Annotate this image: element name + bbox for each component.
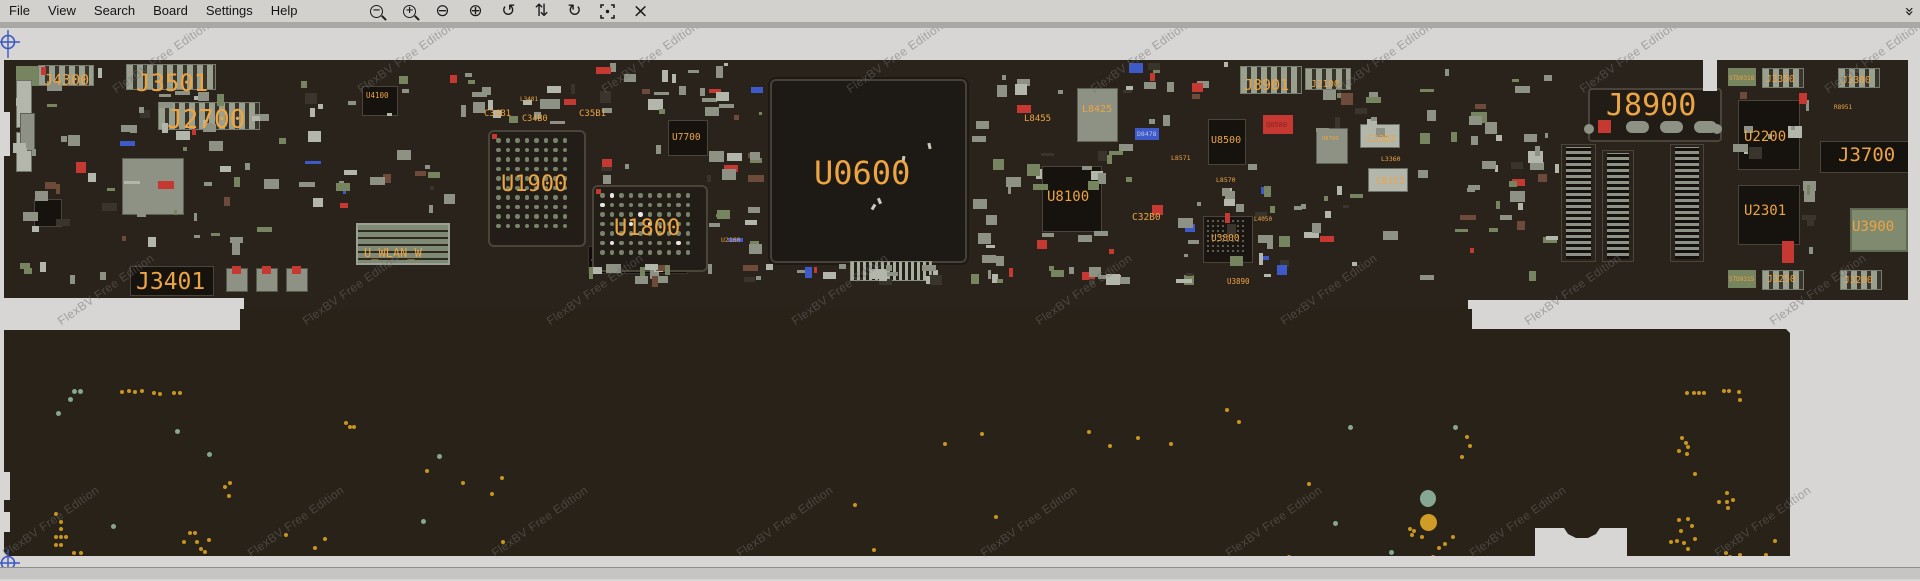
pcb-component[interactable] bbox=[1304, 232, 1318, 237]
board-viewer-canvas[interactable]: J4300J3501J2700U4100L3401C34B1C34B0C35B1… bbox=[0, 28, 1920, 567]
pcb-component[interactable] bbox=[656, 145, 661, 155]
pcb-component[interactable] bbox=[32, 149, 36, 156]
pcb-component[interactable] bbox=[972, 136, 986, 142]
center-target-icon[interactable] bbox=[598, 1, 618, 21]
pcb-component[interactable] bbox=[1058, 90, 1063, 93]
pcb-component[interactable] bbox=[1178, 218, 1194, 228]
pcb-component[interactable] bbox=[257, 227, 272, 233]
pcb-component[interactable] bbox=[340, 203, 348, 208]
toolbar-overflow-chevrons-icon[interactable]: » bbox=[1901, 7, 1920, 15]
pcb-component[interactable] bbox=[122, 158, 184, 215]
pcb-component[interactable] bbox=[301, 81, 307, 88]
pcb-component[interactable] bbox=[749, 244, 763, 254]
pcb-component[interactable] bbox=[564, 99, 577, 104]
pcb-component[interactable] bbox=[550, 121, 565, 124]
pcb-component[interactable] bbox=[1584, 124, 1594, 134]
pcb-component[interactable] bbox=[299, 182, 315, 187]
pcb-component[interactable] bbox=[1264, 274, 1271, 277]
pcb-component[interactable] bbox=[24, 268, 32, 274]
component-label-U1900[interactable]: U1900 bbox=[501, 174, 567, 196]
pcb-component[interactable] bbox=[1027, 164, 1040, 176]
pcb-component[interactable] bbox=[100, 272, 106, 281]
pcb-component[interactable] bbox=[1323, 90, 1336, 100]
pcb-component[interactable] bbox=[976, 121, 988, 129]
pcb-component[interactable] bbox=[279, 138, 287, 144]
pcb-component[interactable] bbox=[571, 84, 575, 94]
pcb-component[interactable] bbox=[1176, 279, 1192, 282]
component-label-Q8580[interactable]: Q8580 bbox=[1266, 122, 1287, 129]
pcb-component[interactable] bbox=[1420, 275, 1434, 281]
pcb-component[interactable] bbox=[603, 175, 610, 184]
pcb-component[interactable] bbox=[130, 125, 137, 134]
component-label-J3350[interactable]: J3350 bbox=[1766, 75, 1795, 85]
pcb-component[interactable] bbox=[1343, 205, 1349, 208]
component-label-J3250[interactable]: J3250 bbox=[1767, 275, 1796, 285]
pcb-component[interactable] bbox=[1712, 124, 1722, 134]
pcb-component[interactable] bbox=[1051, 270, 1064, 278]
pcb-component[interactable] bbox=[465, 73, 472, 77]
pcb-component[interactable] bbox=[744, 277, 755, 282]
pcb-component[interactable] bbox=[1366, 97, 1381, 102]
pcb-component[interactable] bbox=[886, 265, 892, 270]
component-label-D8478[interactable]: D8478 bbox=[1137, 131, 1157, 138]
pcb-component[interactable] bbox=[1264, 186, 1271, 197]
pcb-component[interactable] bbox=[1316, 128, 1348, 164]
pcb-component[interactable] bbox=[1109, 151, 1123, 155]
pcb-component[interactable] bbox=[1383, 231, 1398, 240]
pcb-component[interactable] bbox=[1538, 174, 1547, 182]
pcb-component[interactable] bbox=[430, 186, 435, 190]
pcb-component[interactable] bbox=[1469, 116, 1482, 126]
pcb-component[interactable] bbox=[1451, 132, 1457, 142]
pcb-component[interactable] bbox=[823, 272, 836, 279]
pcb-component[interactable] bbox=[1511, 162, 1523, 169]
pcb-component[interactable] bbox=[1529, 271, 1536, 281]
pcb-component[interactable] bbox=[1496, 135, 1502, 141]
component-label-STD9315[interactable]: STD9315 bbox=[1729, 277, 1754, 283]
pcb-component[interactable] bbox=[482, 87, 490, 96]
pcb-component[interactable] bbox=[654, 92, 670, 95]
pcb-component[interactable] bbox=[1188, 240, 1200, 244]
pcb-component[interactable] bbox=[748, 175, 764, 182]
pcb-component[interactable] bbox=[1782, 241, 1794, 263]
component-label-U2301[interactable]: U2301 bbox=[1744, 204, 1786, 218]
rotate-cw-icon[interactable]: ↻ bbox=[565, 1, 585, 21]
pcb-component[interactable] bbox=[750, 152, 760, 160]
pcb-component[interactable] bbox=[750, 241, 759, 244]
pcb-component[interactable] bbox=[1148, 63, 1160, 70]
pcb-component[interactable] bbox=[1224, 199, 1235, 206]
pcb-component[interactable] bbox=[1467, 188, 1475, 192]
component-label-L8425[interactable]: L8425 bbox=[1082, 105, 1112, 115]
pcb-component[interactable] bbox=[1123, 90, 1132, 93]
pcb-component[interactable] bbox=[707, 175, 711, 182]
pcb-component[interactable] bbox=[107, 188, 116, 192]
pcb-component[interactable] bbox=[1197, 202, 1200, 205]
pcb-component[interactable] bbox=[662, 70, 669, 82]
pcb-component[interactable] bbox=[986, 245, 995, 248]
pcb-component[interactable] bbox=[461, 105, 466, 117]
pcb-component[interactable] bbox=[922, 265, 936, 271]
pcb-component[interactable] bbox=[717, 210, 729, 219]
component-label-L8571[interactable]: L8571 bbox=[1171, 155, 1191, 162]
pcb-component[interactable] bbox=[402, 89, 409, 93]
pcb-component[interactable] bbox=[1555, 164, 1559, 173]
pcb-component[interactable] bbox=[1355, 108, 1368, 114]
pcb-component[interactable] bbox=[425, 165, 430, 169]
pcb-component[interactable] bbox=[759, 112, 762, 115]
pcb-component[interactable] bbox=[1236, 204, 1244, 212]
pcb-component[interactable] bbox=[370, 177, 385, 185]
component-label-C35B1[interactable]: C35B1 bbox=[579, 110, 606, 119]
component-label-U8500[interactable]: U8500 bbox=[1211, 136, 1241, 146]
pcb-component[interactable] bbox=[1224, 62, 1227, 67]
pcb-component[interactable] bbox=[120, 141, 134, 146]
pcb-component[interactable] bbox=[174, 210, 177, 214]
pcb-component[interactable] bbox=[642, 89, 650, 94]
pcb-component[interactable] bbox=[1037, 240, 1048, 250]
pcb-component[interactable] bbox=[183, 147, 187, 151]
pcb-component[interactable] bbox=[748, 207, 760, 213]
pcb-component[interactable] bbox=[652, 276, 659, 288]
pcb-component[interactable] bbox=[40, 262, 46, 272]
pcb-component[interactable] bbox=[1088, 181, 1099, 190]
pcb-component[interactable] bbox=[1535, 146, 1540, 157]
pcb-component[interactable] bbox=[879, 271, 887, 281]
pcb-component[interactable] bbox=[428, 172, 440, 179]
component-label-J2700[interactable]: J2700 bbox=[167, 107, 245, 133]
component-label-J3401[interactable]: J3401 bbox=[136, 271, 205, 294]
pcb-component[interactable] bbox=[211, 233, 220, 236]
pcb-component[interactable] bbox=[1510, 191, 1525, 201]
pcb-component[interactable] bbox=[220, 166, 231, 172]
component-label-C32B0[interactable]: C32B0 bbox=[1132, 213, 1161, 223]
pcb-component[interactable] bbox=[232, 266, 241, 274]
pcb-component[interactable] bbox=[1069, 267, 1074, 275]
pcb-component[interactable] bbox=[1544, 75, 1552, 80]
pcb-component[interactable] bbox=[1517, 221, 1525, 231]
pcb-component[interactable] bbox=[68, 135, 80, 147]
menu-item-board[interactable]: Board bbox=[144, 0, 197, 22]
pcb-component[interactable] bbox=[743, 265, 758, 271]
component-label-J3300[interactable]: J3300 bbox=[1842, 76, 1871, 86]
component-label-L3360[interactable]: L3360 bbox=[1381, 156, 1401, 163]
pcb-component[interactable] bbox=[1017, 105, 1031, 113]
pcb-component[interactable] bbox=[724, 63, 729, 66]
pcb-component[interactable] bbox=[727, 153, 742, 161]
pcb-component[interactable] bbox=[102, 203, 117, 211]
pcb-component[interactable] bbox=[1445, 69, 1449, 76]
pcb-component[interactable] bbox=[1530, 162, 1544, 171]
pcb-component[interactable] bbox=[1129, 63, 1143, 73]
component-label-STD9318[interactable]: STD9318 bbox=[1729, 76, 1754, 82]
pcb-component[interactable] bbox=[540, 99, 552, 109]
pcb-component[interactable] bbox=[679, 86, 686, 95]
component-label-U1800[interactable]: U1800 bbox=[614, 218, 680, 240]
component-label-U0600[interactable]: U0600 bbox=[814, 157, 910, 189]
pcb-component[interactable] bbox=[76, 162, 85, 173]
pcb-component[interactable] bbox=[124, 181, 140, 184]
pcb-component[interactable] bbox=[1515, 86, 1530, 94]
pcb-component[interactable] bbox=[929, 275, 942, 285]
pcb-component[interactable] bbox=[70, 275, 75, 285]
pcb-component[interactable] bbox=[973, 199, 986, 209]
pcb-component[interactable] bbox=[1259, 253, 1262, 265]
pcb-component[interactable] bbox=[1098, 173, 1105, 184]
pcb-component[interactable] bbox=[305, 93, 317, 104]
zoom-out-circle-icon[interactable]: ⊖ bbox=[433, 1, 453, 21]
pcb-component[interactable] bbox=[28, 131, 32, 135]
pcb-component[interactable] bbox=[224, 197, 230, 207]
pcb-component[interactable] bbox=[1301, 204, 1306, 208]
pcb-component[interactable] bbox=[234, 177, 240, 187]
pcb-component[interactable] bbox=[596, 189, 601, 194]
pcb-component[interactable] bbox=[635, 276, 648, 284]
pcb-component[interactable] bbox=[492, 134, 497, 139]
pcb-component[interactable] bbox=[722, 169, 736, 180]
pcb-component[interactable] bbox=[230, 237, 243, 244]
component-label-L4050[interactable]: L4050 bbox=[1254, 217, 1272, 223]
pcb-component[interactable] bbox=[805, 267, 812, 278]
pcb-component[interactable] bbox=[1418, 170, 1427, 178]
component-label-J3700[interactable]: J3700 bbox=[1838, 146, 1895, 165]
pcb-component[interactable] bbox=[1791, 126, 1796, 131]
pcb-component[interactable] bbox=[1094, 231, 1108, 236]
component-label-L8570[interactable]: L8570 bbox=[1216, 177, 1236, 184]
pcb-component[interactable] bbox=[47, 104, 57, 107]
pcb-component[interactable] bbox=[292, 266, 301, 274]
component-label-U7700[interactable]: U7700 bbox=[672, 133, 701, 143]
pcb-component[interactable] bbox=[245, 163, 249, 170]
pcb-component[interactable] bbox=[23, 212, 39, 221]
pcb-component[interactable] bbox=[1740, 92, 1747, 99]
pcb-component[interactable] bbox=[35, 191, 48, 200]
pcb-component[interactable] bbox=[1371, 117, 1377, 121]
pcb-component[interactable] bbox=[1015, 84, 1027, 95]
pcb-component[interactable] bbox=[708, 264, 712, 274]
component-label-C34B0[interactable]: C34B0 bbox=[522, 115, 548, 124]
pcb-component[interactable] bbox=[397, 150, 411, 160]
menu-item-search[interactable]: Search bbox=[85, 0, 144, 22]
pcb-component[interactable] bbox=[719, 104, 734, 108]
pcb-component[interactable] bbox=[996, 256, 1004, 266]
component-label-J4300[interactable]: J4300 bbox=[44, 73, 89, 88]
pcb-component[interactable] bbox=[1119, 144, 1133, 151]
pcb-component[interactable] bbox=[310, 108, 316, 117]
pcb-component[interactable] bbox=[264, 179, 280, 189]
pcb-component[interactable] bbox=[1163, 115, 1170, 126]
pcb-component[interactable] bbox=[1041, 153, 1054, 156]
component-label-J8901[interactable]: J8901 bbox=[1244, 78, 1289, 93]
pcb-component[interactable] bbox=[305, 161, 321, 164]
pcb-component[interactable] bbox=[1475, 104, 1486, 109]
pcb-component[interactable] bbox=[751, 87, 763, 92]
pcb-component[interactable] bbox=[1496, 201, 1499, 209]
pcb-component[interactable] bbox=[1455, 229, 1469, 232]
pcb-component[interactable] bbox=[387, 113, 392, 117]
pcb-component[interactable] bbox=[313, 198, 323, 207]
pcb-component[interactable] bbox=[468, 80, 475, 84]
pcb-component[interactable] bbox=[148, 237, 156, 247]
pcb-component[interactable] bbox=[625, 164, 629, 169]
pcb-component[interactable] bbox=[657, 276, 667, 283]
pcb-component[interactable] bbox=[1006, 177, 1021, 187]
pcb-component[interactable] bbox=[596, 67, 610, 74]
pcb-component[interactable] bbox=[98, 68, 103, 78]
pcb-component[interactable] bbox=[1420, 89, 1434, 93]
pcb-component[interactable] bbox=[700, 88, 705, 95]
pcb-component[interactable] bbox=[624, 74, 636, 82]
pcb-component[interactable] bbox=[308, 131, 321, 143]
pcb-component[interactable] bbox=[429, 205, 433, 213]
pcb-component[interactable] bbox=[593, 267, 602, 274]
pcb-component[interactable] bbox=[1109, 249, 1114, 254]
pcb-component[interactable] bbox=[1545, 133, 1549, 138]
pcb-component[interactable] bbox=[1078, 235, 1092, 242]
pcb-component[interactable] bbox=[1489, 228, 1498, 232]
pcb-component[interactable] bbox=[1312, 223, 1321, 233]
pcb-component[interactable] bbox=[232, 243, 240, 254]
pcb-component[interactable] bbox=[1460, 215, 1476, 220]
pcb-component[interactable] bbox=[1077, 88, 1118, 142]
pcb-component[interactable] bbox=[606, 264, 621, 273]
pcb-component[interactable] bbox=[645, 264, 658, 270]
pcb-component[interactable] bbox=[1192, 94, 1200, 100]
pcb-component[interactable] bbox=[1082, 166, 1092, 171]
zoom-in-circle-icon[interactable]: ⊕ bbox=[466, 1, 486, 21]
pcb-component[interactable] bbox=[705, 107, 719, 116]
pcb-component[interactable] bbox=[158, 181, 174, 190]
pcb-component[interactable] bbox=[61, 136, 67, 143]
pcb-component[interactable] bbox=[709, 151, 724, 161]
pcb-component[interactable] bbox=[1546, 236, 1558, 240]
pcb-component[interactable] bbox=[1471, 136, 1477, 145]
pcb-component[interactable] bbox=[348, 101, 356, 105]
pcb-component[interactable] bbox=[1192, 83, 1204, 92]
menu-item-settings[interactable]: Settings bbox=[197, 0, 262, 22]
pcb-component[interactable] bbox=[1325, 211, 1332, 218]
pcb-component[interactable] bbox=[1149, 119, 1155, 124]
pcb-component[interactable] bbox=[1427, 110, 1436, 121]
pcb-component[interactable] bbox=[1033, 184, 1048, 190]
pcb-component[interactable] bbox=[450, 75, 457, 83]
pcb-component[interactable] bbox=[1749, 147, 1762, 158]
pcb-component[interactable] bbox=[1809, 247, 1814, 254]
pcb-component[interactable] bbox=[473, 102, 485, 113]
pcb-component[interactable] bbox=[1807, 185, 1810, 195]
pcb-component[interactable] bbox=[344, 170, 357, 175]
pcb-component[interactable] bbox=[139, 107, 144, 113]
pcb-component[interactable] bbox=[1500, 215, 1512, 220]
pcb-component[interactable] bbox=[814, 267, 817, 274]
pcb-component[interactable] bbox=[336, 183, 350, 191]
pcb-component[interactable] bbox=[886, 272, 898, 275]
pcb-component[interactable] bbox=[399, 76, 408, 84]
pcb-component[interactable] bbox=[978, 233, 991, 244]
pcb-component[interactable] bbox=[547, 86, 561, 94]
pcb-component[interactable] bbox=[137, 206, 146, 217]
component-label-L8455[interactable]: L8455 bbox=[1024, 115, 1051, 124]
pcb-component[interactable] bbox=[1316, 128, 1329, 132]
component-label-U3800[interactable]: U3800 bbox=[1211, 234, 1240, 244]
component-label-J3501[interactable]: J3501 bbox=[136, 71, 208, 95]
component-label-U4100[interactable]: U4100 bbox=[366, 92, 389, 100]
pcb-component[interactable] bbox=[997, 279, 1003, 283]
pcb-component[interactable] bbox=[1144, 82, 1156, 89]
pcb-component[interactable] bbox=[1337, 186, 1342, 194]
pcb-component[interactable] bbox=[986, 215, 997, 225]
pcb-component[interactable] bbox=[262, 266, 271, 274]
pcb-component[interactable] bbox=[1524, 134, 1537, 143]
pcb-component[interactable] bbox=[160, 207, 171, 211]
pcb-component[interactable] bbox=[988, 270, 991, 280]
pcb-component[interactable] bbox=[88, 173, 96, 183]
pcb-component[interactable] bbox=[1225, 213, 1230, 224]
pcb-component[interactable] bbox=[204, 182, 212, 186]
pcb-component[interactable] bbox=[1089, 267, 1102, 276]
pcb-component[interactable] bbox=[971, 274, 979, 284]
pcb-component[interactable] bbox=[1602, 150, 1634, 262]
component-label-U3900[interactable]: U3900 bbox=[1852, 220, 1894, 234]
component-label-C81C2[interactable]: C81C2 bbox=[1376, 177, 1405, 187]
pcb-component[interactable] bbox=[1509, 181, 1517, 187]
pcb-component[interactable] bbox=[56, 184, 60, 194]
pcb-component[interactable] bbox=[1150, 73, 1155, 80]
pcb-component[interactable] bbox=[926, 276, 930, 283]
pcb-component[interactable] bbox=[665, 265, 670, 275]
pcb-component[interactable] bbox=[1733, 144, 1748, 152]
rotate-ccw-icon[interactable]: ↺ bbox=[499, 1, 519, 21]
pcb-component[interactable] bbox=[1167, 82, 1175, 91]
pcb-component[interactable] bbox=[194, 213, 197, 220]
pcb-component[interactable] bbox=[1042, 233, 1054, 237]
pcb-component[interactable] bbox=[1802, 215, 1816, 220]
pcb-component[interactable] bbox=[702, 98, 717, 102]
flip-vertical-icon[interactable]: ⇅ bbox=[532, 1, 552, 21]
component-label-U8100[interactable]: U8100 bbox=[1047, 190, 1089, 204]
pcb-component[interactable] bbox=[1107, 155, 1112, 164]
pcb-component[interactable] bbox=[26, 138, 34, 148]
pcb-component[interactable] bbox=[1420, 133, 1430, 144]
pcb-component[interactable] bbox=[194, 235, 201, 238]
component-label-C34B1[interactable]: C34B1 bbox=[484, 110, 511, 119]
pcb-component[interactable] bbox=[766, 264, 773, 270]
pcb-component[interactable] bbox=[600, 91, 611, 102]
close-icon[interactable]: × bbox=[631, 1, 651, 21]
menu-item-help[interactable]: Help bbox=[262, 0, 307, 22]
component-label-U2200[interactable]: U2200 bbox=[1744, 130, 1786, 144]
pcb-component[interactable] bbox=[1277, 265, 1287, 275]
pcb-component[interactable] bbox=[672, 74, 676, 84]
component-label-U2160[interactable]: U2160 bbox=[721, 237, 741, 244]
pcb-component[interactable] bbox=[123, 176, 135, 179]
pcb-component[interactable] bbox=[1263, 256, 1269, 260]
pcb-component[interactable] bbox=[1799, 93, 1808, 105]
menu-item-file[interactable]: File bbox=[0, 0, 39, 22]
pcb-component[interactable] bbox=[1089, 279, 1095, 286]
pcb-component[interactable] bbox=[56, 219, 71, 226]
pcb-component[interactable] bbox=[1482, 161, 1496, 169]
pcb-component[interactable] bbox=[1350, 194, 1364, 198]
component-label-J3200[interactable]: J3200 bbox=[1844, 276, 1873, 286]
component-label-J8900[interactable]: J8900 bbox=[1606, 91, 1696, 121]
pcb-component[interactable] bbox=[1126, 86, 1133, 90]
pcb-component[interactable] bbox=[745, 220, 757, 225]
pcb-component[interactable] bbox=[1670, 144, 1704, 262]
pcb-top-board[interactable]: J4300J3501J2700U4100L3401C34B1C34B0C35B1… bbox=[0, 28, 1920, 328]
component-label-J2100[interactable]: J2100 bbox=[1311, 80, 1340, 90]
magnify-in-icon[interactable]: + bbox=[400, 1, 420, 21]
